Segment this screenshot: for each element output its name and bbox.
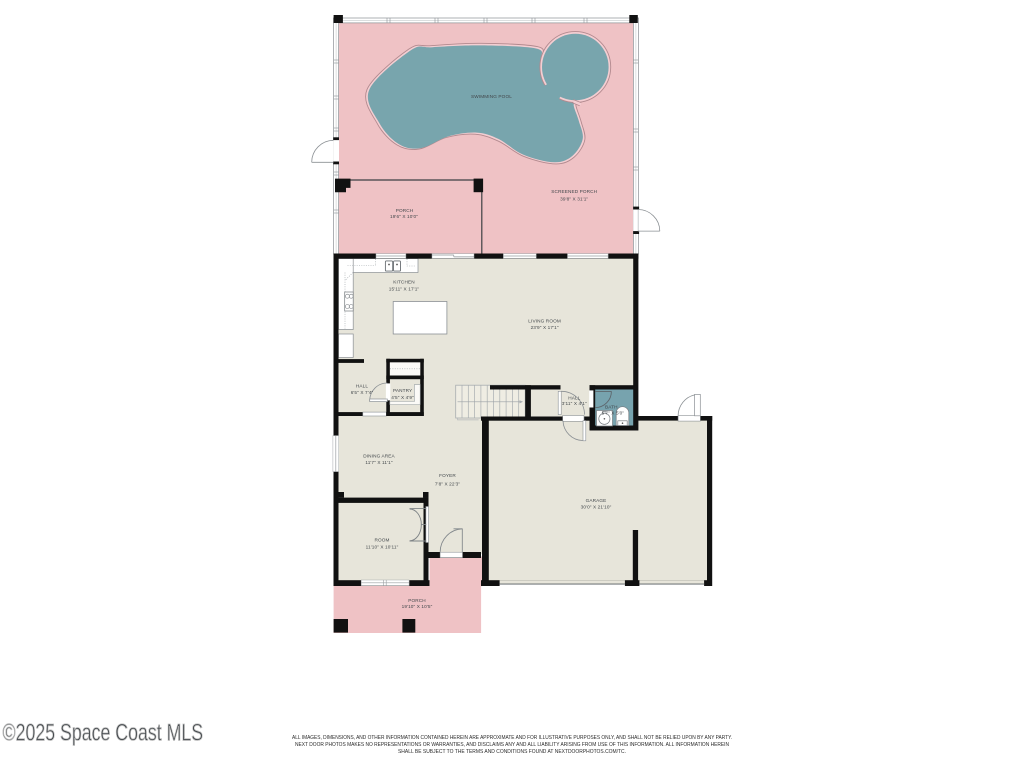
svg-text:HALL: HALL: [356, 383, 368, 388]
svg-text:KITCHEN: KITCHEN: [393, 279, 414, 284]
svg-text:6'5" X 7'4": 6'5" X 7'4": [351, 390, 374, 395]
svg-text:3'11" X 4'1": 3'11" X 4'1": [562, 401, 587, 406]
svg-text:LIVING ROOM: LIVING ROOM: [528, 319, 561, 324]
svg-text:PORCH: PORCH: [408, 598, 426, 603]
svg-text:PANTRY: PANTRY: [393, 388, 413, 393]
svg-text:GARAGE: GARAGE: [586, 498, 607, 503]
svg-text:5'7" X 5'0": 5'7" X 5'0": [602, 410, 625, 415]
svg-text:11'10" X 10'11": 11'10" X 10'11": [366, 545, 399, 550]
svg-text:SHALL BE SUBJECT TO THE TERMS: SHALL BE SUBJECT TO THE TERMS AND CONDIT…: [398, 749, 626, 755]
svg-text:19'6" X 10'0": 19'6" X 10'0": [390, 214, 418, 219]
svg-text:DINING AREA: DINING AREA: [363, 454, 395, 459]
svg-text:11'7" X 11'1": 11'7" X 11'1": [365, 460, 393, 465]
svg-text:SCREENED PORCH: SCREENED PORCH: [551, 189, 597, 194]
svg-text:NEXT DOOR PHOTOS MAKES NO REPR: NEXT DOOR PHOTOS MAKES NO REPRESENTATION…: [295, 742, 729, 748]
svg-text:©2025 Space Coast MLS: ©2025 Space Coast MLS: [3, 720, 204, 746]
svg-text:FOYER: FOYER: [439, 473, 456, 478]
svg-text:HALL: HALL: [568, 395, 580, 400]
svg-text:19'10" X 10'5": 19'10" X 10'5": [402, 604, 433, 609]
svg-text:23'9" X 17'1": 23'9" X 17'1": [531, 325, 559, 330]
svg-text:15'11" X 17'1": 15'11" X 17'1": [389, 286, 420, 291]
svg-text:4'5" X 4'9": 4'5" X 4'9": [391, 395, 414, 400]
svg-text:PORCH: PORCH: [396, 208, 414, 213]
svg-text:39'8" X 31'1": 39'8" X 31'1": [560, 197, 588, 202]
svg-text:ROOM: ROOM: [374, 538, 389, 543]
svg-text:7'8" X 22'3": 7'8" X 22'3": [435, 481, 461, 486]
svg-text:BATH: BATH: [605, 404, 618, 409]
svg-text:SWIMMING POOL: SWIMMING POOL: [471, 94, 512, 99]
svg-text:ALL IMAGES, DIMENSIONS, AND OT: ALL IMAGES, DIMENSIONS, AND OTHER INFORM…: [292, 735, 732, 741]
svg-text:30'0" X 21'10": 30'0" X 21'10": [581, 505, 612, 510]
